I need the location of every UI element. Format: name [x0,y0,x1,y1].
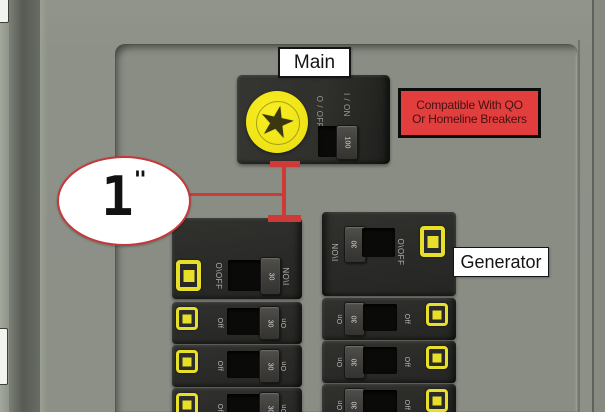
branch-rating: 30 [351,401,358,409]
compatibility-label: Compatible With QO Or Homeline Breakers [398,88,541,138]
interlock-right-rating: 30 [351,241,358,249]
dimension-cap-bottom [268,215,301,222]
square-d-logo-icon [176,260,201,291]
branch-slot [227,351,263,378]
dimension-line-vertical [282,164,286,219]
branch-slot [363,390,397,412]
branch-off-label: Off [214,308,226,338]
panel-side-band [9,0,40,412]
knob-ring [256,101,300,145]
branch-on-label: On [278,394,290,412]
branch-slot [227,394,263,412]
branch-on-label: On [278,351,290,381]
square-d-logo-icon [426,389,448,412]
square-d-logo-icon [176,393,198,412]
gap-value: 1 [101,170,134,224]
interlock-breaker-right: I\ON 30 O\OFF [322,212,456,296]
interlock-right-on-label: I\ON [329,234,341,270]
branch-handle[interactable]: 30 [344,302,365,336]
branch-rating: 30 [351,358,358,366]
main-breaker-rating: 100 [344,137,351,149]
branch-breaker-row: Off 30 On [172,345,302,387]
main-breaker-handle[interactable]: 100 [336,125,358,160]
interlock-left-off-label: O\OFF [213,256,225,296]
panel-door-edge [40,0,48,412]
branch-off-label: Off [401,390,413,412]
branch-off-label: Off [214,394,226,412]
interlock-left-on-label: I\ON [280,258,292,294]
interlock-breaker-left: O\OFF 30 I\ON [172,218,302,299]
branch-off-label: Off [401,347,413,377]
main-label: Main [278,47,351,78]
hinge-top [0,0,9,23]
branch-rating: 30 [266,319,273,327]
branch-breaker-row: On 30 Off [322,298,456,340]
branch-on-label: On [278,308,290,338]
interlock-left-rating: 30 [267,272,274,280]
interlock-right-slot [362,228,395,257]
branch-handle[interactable]: 30 [259,392,280,412]
branch-handle[interactable]: 30 [344,345,365,379]
branch-handle[interactable]: 30 [344,388,365,412]
branch-handle[interactable]: 30 [259,306,280,340]
branch-handle[interactable]: 30 [259,349,280,383]
branch-slot [363,347,397,374]
dimension-line-horizontal [186,193,284,196]
square-d-logo-icon [420,226,445,257]
branch-off-label: Off [401,304,413,334]
square-d-logo-icon [426,303,448,326]
branch-rating: 30 [266,405,273,412]
hinge-bottom [0,328,8,385]
square-d-logo-icon [426,346,448,369]
breaker-panel-illustration: ★ O / OFF I / ON 100 O\OFF 30 I\ON I\ON … [0,0,605,412]
compat-line1: Compatible With QO [416,99,522,113]
square-d-logo-icon [176,350,198,373]
branch-breaker-row: On 30 Off [322,384,456,412]
branch-off-label: Off [214,351,226,381]
branch-slot [227,308,263,335]
gap-callout: 1 " [57,156,191,246]
generator-label: Generator [453,247,549,277]
square-d-logo-icon [176,307,198,330]
generator-label-text: Generator [460,252,541,273]
branch-breaker-row: On 30 Off [322,341,456,383]
branch-breaker-row: Off 30 On [172,302,302,344]
panel-wall-right [594,0,605,412]
main-label-text: Main [294,52,335,74]
main-breaker-on-label: I / ON [341,83,353,127]
branch-breaker-row: Off 30 On [172,388,302,412]
interlock-left-handle[interactable]: 30 [260,257,281,295]
main-breaker: ★ O / OFF I / ON 100 [237,75,390,164]
compat-line2: Or Homeline Breakers [412,113,527,127]
interlock-right-off-label: O\OFF [395,232,407,272]
branch-rating: 30 [266,362,273,370]
branch-rating: 30 [351,315,358,323]
gap-unit: " [134,168,147,193]
panel-ridge-right [578,40,580,412]
branch-slot [363,304,397,331]
